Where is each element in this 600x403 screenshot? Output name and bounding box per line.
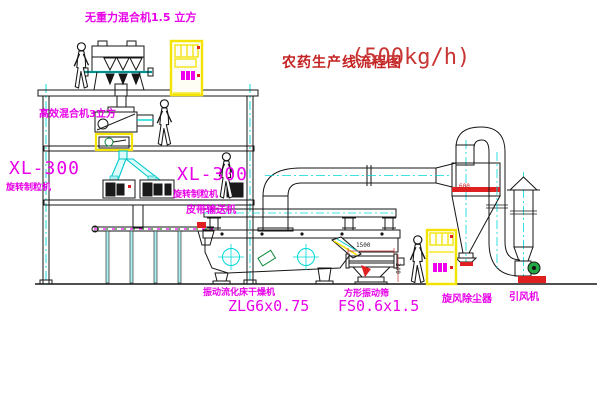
control-cabinet-ground — [427, 230, 456, 284]
granulator-left — [103, 176, 135, 198]
induced-draft-fan — [515, 261, 546, 283]
gravity-free-mixer — [83, 41, 153, 107]
label-dryer-model: ZLG6x0.75 — [228, 299, 309, 314]
y-chute — [110, 151, 160, 180]
label-granulator-left-model: XL-300 — [9, 160, 80, 178]
dimension-sieve-width: 1500 — [356, 243, 370, 249]
cad-process-flow-screenshot: 农药生产线流程图 (500kg/h) 无重力混合机1.5 立方 高效混合机3立方… — [0, 0, 600, 403]
label-fan: 引风机 — [509, 293, 539, 303]
person-figure-ground — [410, 236, 425, 283]
label-cyclone: 旋风除尘器 — [442, 295, 492, 305]
label-he-mixer: 高效混合机3立方 — [39, 110, 116, 120]
control-cabinet-top — [171, 41, 202, 95]
label-gravity-mixer: 无重力混合机1.5 立方 — [85, 12, 196, 23]
diagram-title-capacity: (500kg/h) — [351, 47, 470, 69]
dimension-cyclone: 600 — [459, 184, 470, 190]
label-belt-conveyor: 皮带输送机 — [186, 206, 236, 216]
label-sieve-model: FS0.6x1.5 — [338, 299, 419, 314]
label-granulator-mid-model: XL-300 — [177, 166, 248, 184]
person-figure-floor2 — [157, 100, 171, 145]
dimension-sieve-height: 340 — [394, 263, 400, 274]
exhaust-duct — [258, 163, 456, 231]
label-granulator-left-name: 旋转制粒机 — [6, 184, 51, 193]
person-figure-roof — [74, 43, 88, 88]
belt-conveyor — [92, 222, 214, 283]
label-granulator-mid-name: 旋转制粒机 — [173, 191, 218, 200]
